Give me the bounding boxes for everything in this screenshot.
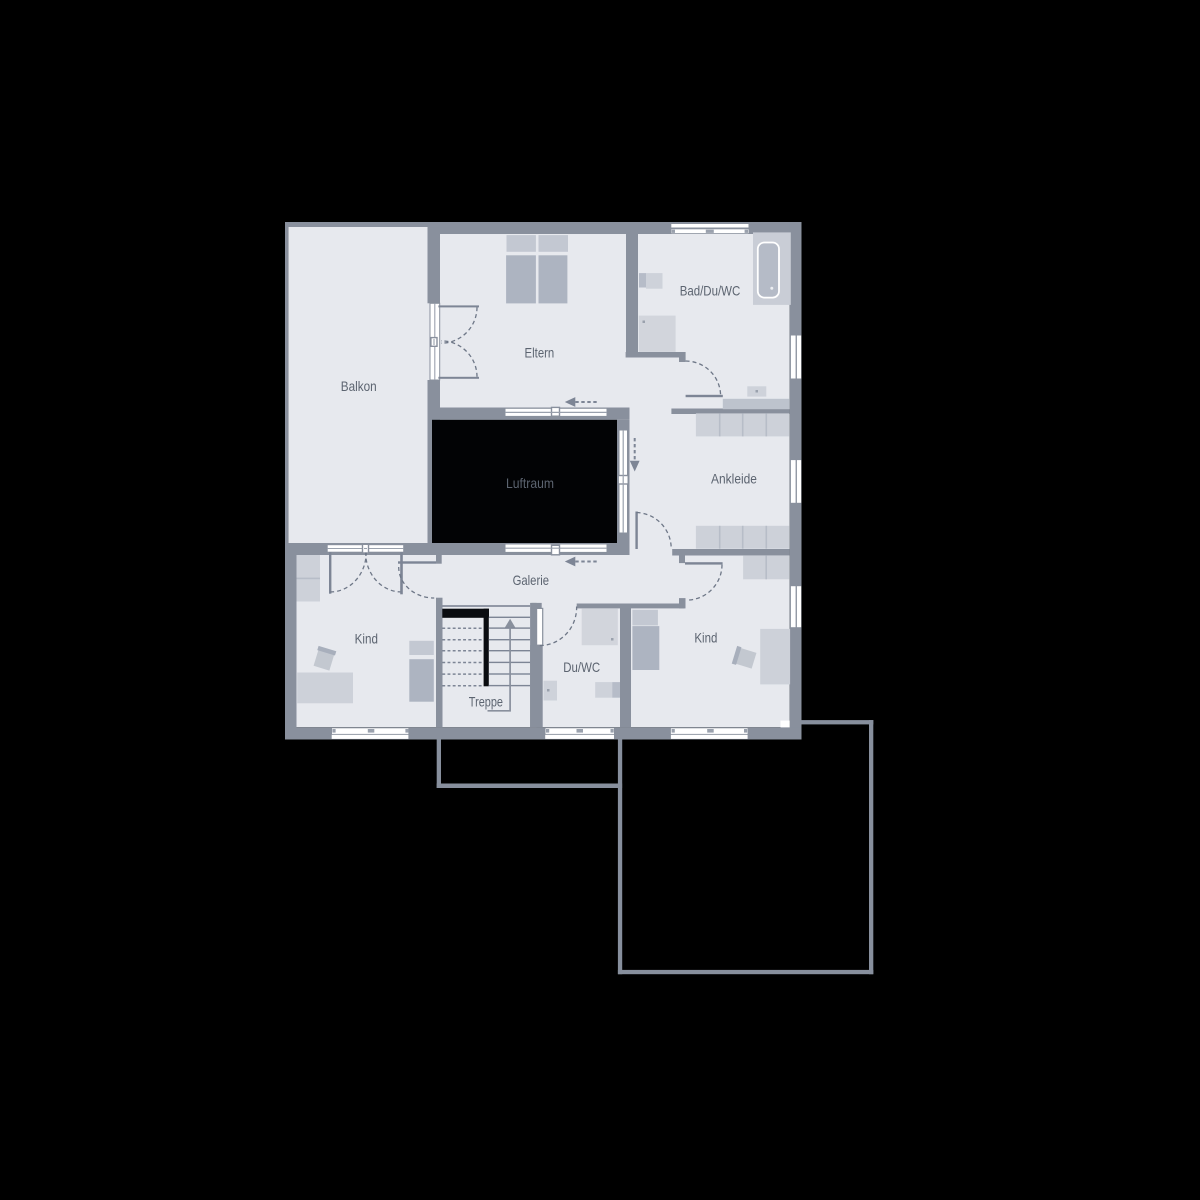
svg-text:Du/WC: Du/WC xyxy=(563,659,600,675)
svg-text:Balkon: Balkon xyxy=(341,378,377,394)
svg-text:Galerie: Galerie xyxy=(513,572,550,588)
svg-text:Bad/Du/WC: Bad/Du/WC xyxy=(680,283,741,299)
svg-text:Treppe: Treppe xyxy=(469,693,503,709)
svg-text:Kind: Kind xyxy=(355,630,378,646)
svg-text:Ankleide: Ankleide xyxy=(711,470,757,486)
svg-text:Eltern: Eltern xyxy=(525,345,555,361)
svg-text:Kind: Kind xyxy=(694,630,717,646)
svg-text:Luftraum: Luftraum xyxy=(506,475,554,491)
